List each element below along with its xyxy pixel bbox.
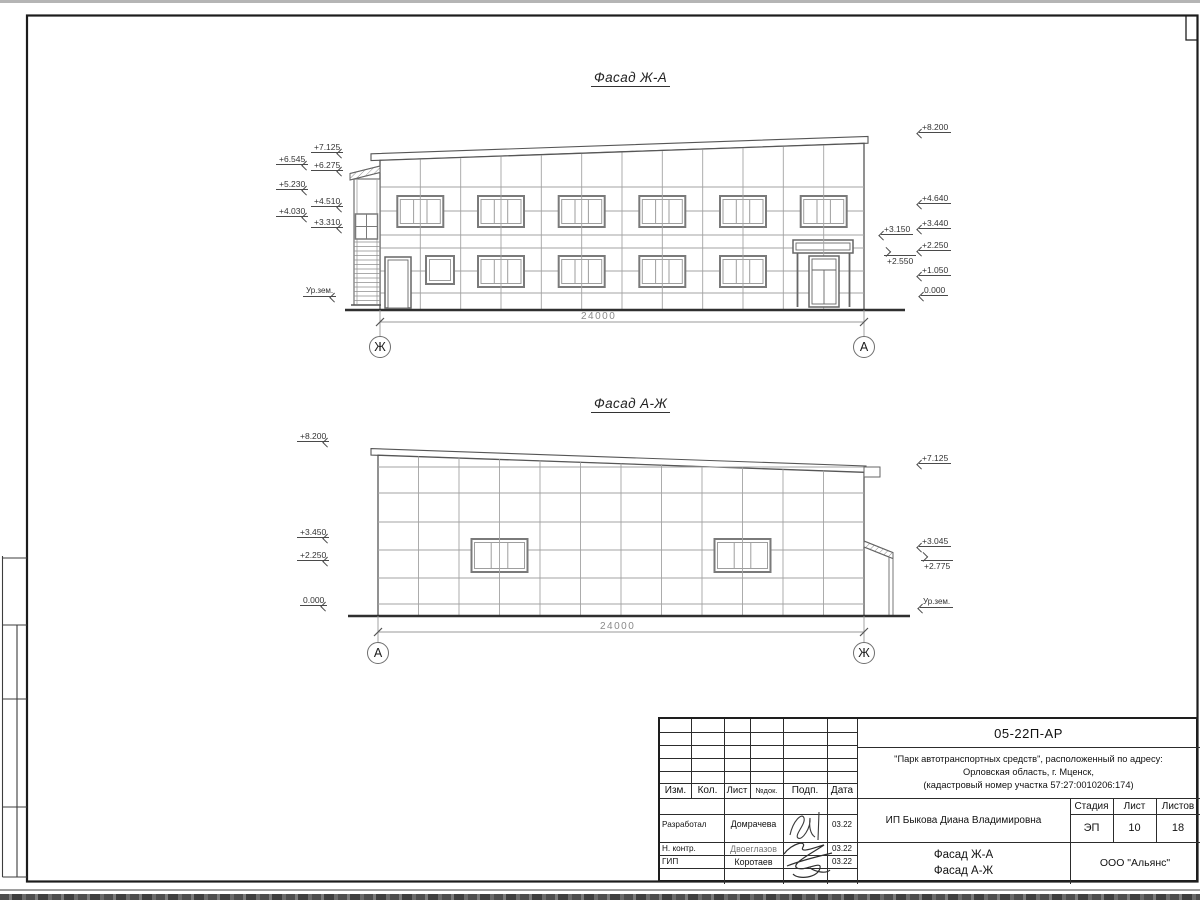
facade2-drawing: [348, 449, 910, 642]
stage-value: ЭП: [1070, 814, 1113, 842]
ground-level-mark: Ур.зем.: [303, 286, 336, 297]
staff-name: Домрачева: [724, 814, 783, 834]
document-code: 05-22П-АР: [857, 719, 1200, 747]
elevation-mark: 0.000: [921, 285, 948, 296]
elevation-mark: +7.125: [311, 142, 343, 153]
staff-date: 03.22: [827, 814, 857, 834]
elevation-mark: +3.450: [297, 527, 329, 538]
axis-bubble: Ж: [853, 642, 875, 664]
facade2-annex: [864, 541, 893, 616]
col-header-data: Дата: [827, 783, 857, 798]
elevation-mark: +4.640: [919, 193, 951, 204]
elevation-mark: +2.550: [884, 255, 916, 266]
drawing-sheet: Фасад Ж-А Фасад А-Ж +7.125 +6.545 +6.275…: [0, 0, 1200, 900]
sheet-number: 10: [1113, 814, 1156, 842]
sheets-total: 18: [1156, 814, 1200, 842]
facade1-drawing: [345, 136, 905, 336]
col-header-izm: Изм.: [660, 783, 691, 798]
project-line: (кадастровый номер участка 57:27:0010206…: [923, 779, 1133, 792]
staff-name: Двоеглазов: [724, 842, 783, 855]
facade1-dimension: [376, 310, 868, 336]
col-header-kol: Кол.: [691, 783, 724, 798]
drawing-title: Фасад Ж-А Фасад А-Ж: [857, 842, 1070, 884]
sheets-total-header: Листов: [1156, 798, 1200, 814]
dimension-label: 24000: [581, 311, 616, 322]
elevation-mark: +3.310: [311, 217, 343, 228]
col-header-list: Лист: [724, 783, 750, 798]
col-header-ndok: №док.: [750, 783, 783, 798]
elevation-mark: 0.000: [300, 595, 327, 606]
company-name: ООО "Альянс": [1070, 842, 1200, 884]
col-header-podp: Подп.: [783, 783, 827, 798]
title-block: Изм. Кол. Лист №док. Подп. Дата Разработ…: [658, 717, 1198, 882]
project-description: "Парк автотранспортных средств", располо…: [859, 747, 1198, 798]
project-line: "Парк автотранспортных средств", располо…: [894, 753, 1163, 766]
elevation-mark: +8.200: [297, 431, 329, 442]
staff-role: Н. контр.: [660, 842, 724, 855]
facade2-roof-ledge: [864, 467, 880, 477]
facade2-title: Фасад А-Ж: [591, 396, 670, 413]
dimension-label: 24000: [600, 621, 635, 632]
elevation-mark: +8.200: [919, 122, 951, 133]
ground-level-mark: Ур.зем.: [920, 597, 953, 608]
elevation-mark: +1.050: [919, 265, 951, 276]
left-stamp-lines: [3, 556, 28, 877]
elevation-mark: +4.030: [276, 206, 308, 217]
elevation-mark: +6.275: [311, 160, 343, 171]
elevation-mark: +2.250: [919, 240, 951, 251]
staff-name: Коротаев: [724, 855, 783, 868]
staff-role: ГИП: [660, 855, 724, 868]
staff-role: Разработал: [660, 814, 724, 834]
sheet-header: Лист: [1113, 798, 1156, 814]
axis-bubble: Ж: [369, 336, 391, 358]
elevation-mark: +5.230: [276, 179, 308, 190]
axis-bubble: А: [853, 336, 875, 358]
elevation-mark: +3.150: [881, 224, 913, 235]
elevation-mark: +6.545: [276, 154, 308, 165]
facade1-title: Фасад Ж-А: [591, 70, 670, 87]
elevation-mark: +7.125: [919, 453, 951, 464]
axis-bubble: А: [367, 642, 389, 664]
elevation-mark: +4.510: [311, 196, 343, 207]
stage-header: Стадия: [1070, 798, 1113, 814]
elevation-mark: +2.250: [297, 550, 329, 561]
facade1-stair-tower: [350, 166, 381, 305]
signature: [780, 838, 836, 882]
project-line: Орловская область, г. Мценск,: [963, 766, 1094, 779]
client-name: ИП Быкова Диана Владимировна: [857, 798, 1070, 842]
elevation-mark: +2.775: [921, 560, 953, 571]
elevation-mark: +3.440: [919, 218, 951, 229]
elevation-mark: +3.045: [919, 536, 951, 547]
